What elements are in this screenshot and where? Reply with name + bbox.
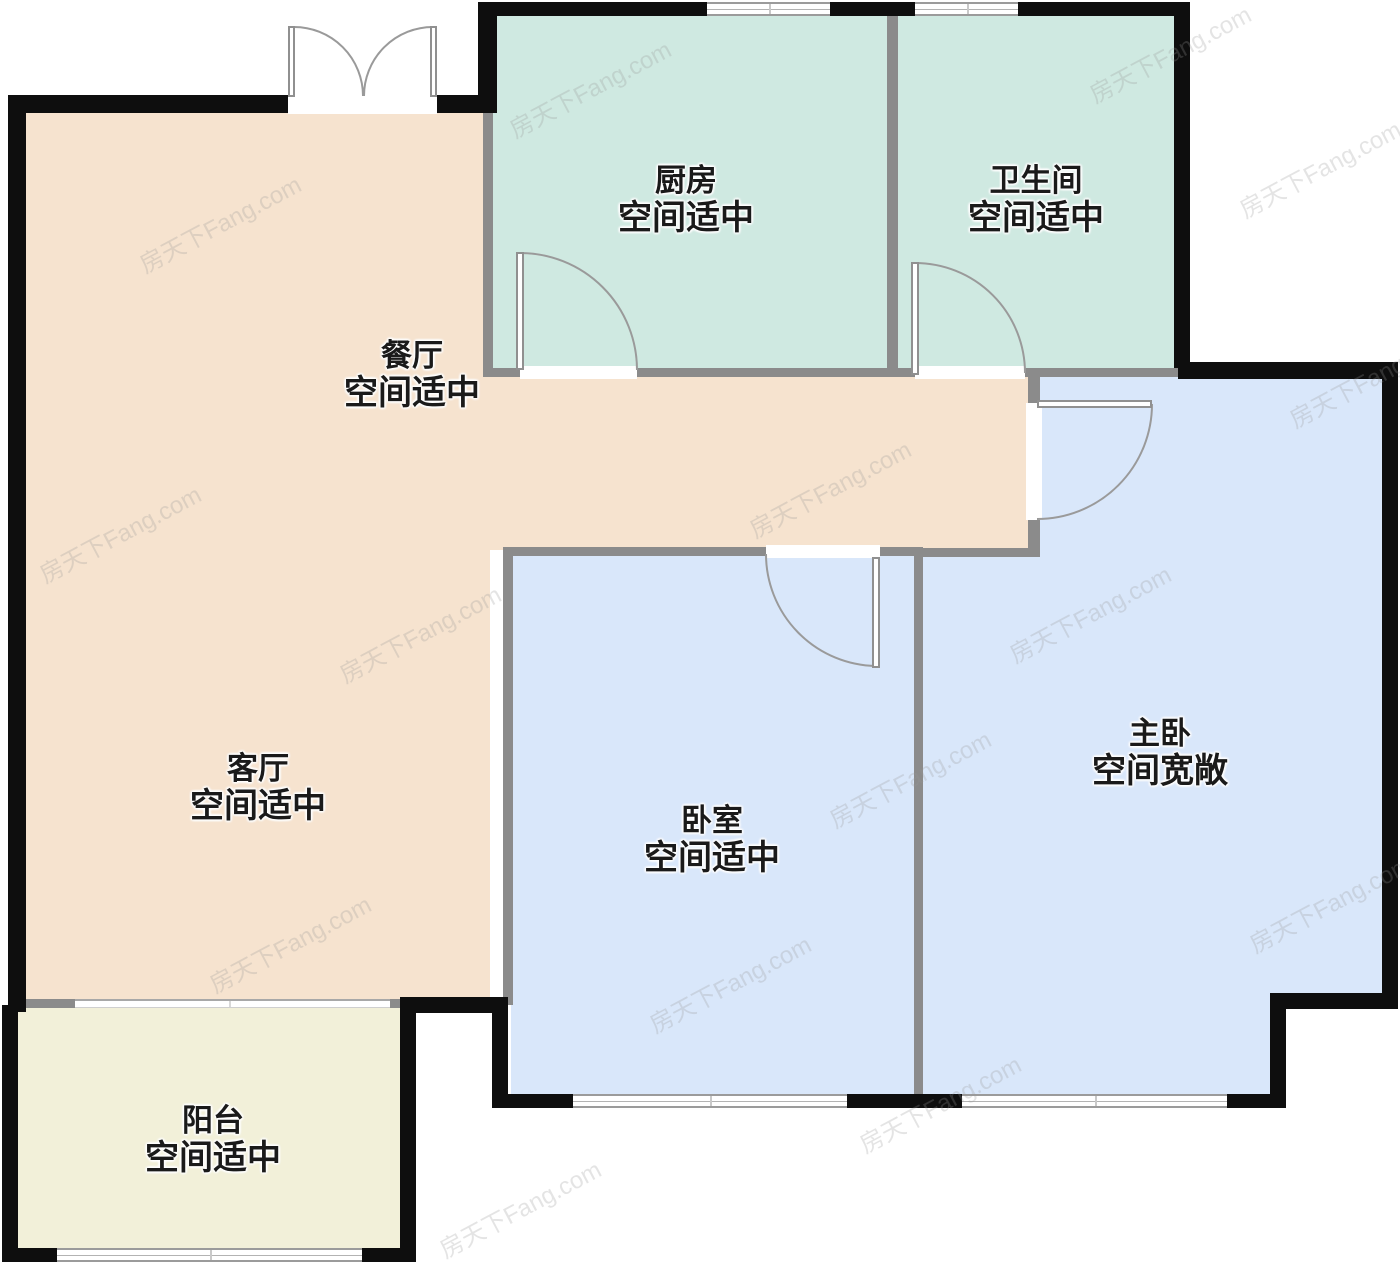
wall <box>478 2 707 16</box>
wall <box>1270 993 1398 1009</box>
wall <box>8 95 26 1012</box>
room-label-dining: 餐厅 空间适中 <box>344 337 480 413</box>
room-status: 空间适中 <box>190 787 326 826</box>
room-label-balcony: 阳台 空间适中 <box>145 1102 281 1178</box>
wall <box>914 548 923 1097</box>
wall <box>1178 362 1398 379</box>
bedroom-door-opening <box>766 545 880 558</box>
wall <box>1382 362 1398 1008</box>
corridor-area <box>483 375 1030 550</box>
wall <box>483 368 520 377</box>
wall <box>492 1000 508 1108</box>
entry-door-opening <box>288 94 437 114</box>
window-bedroom <box>573 1094 847 1108</box>
wall <box>503 547 766 556</box>
master-door-opening <box>1026 403 1042 520</box>
wall <box>1227 1094 1286 1108</box>
wall <box>503 547 513 1005</box>
room-name: 客厅 <box>190 750 326 787</box>
wall <box>920 548 1040 557</box>
room-label-master: 主卧 空间宽敞 <box>1092 715 1228 791</box>
wall <box>10 95 288 113</box>
wall <box>478 2 497 113</box>
room-status: 空间适中 <box>145 1139 281 1178</box>
window-balcony <box>57 1248 362 1262</box>
room-status: 空间宽敞 <box>1092 752 1228 791</box>
wall <box>400 997 416 1262</box>
room-status: 空间适中 <box>968 199 1104 238</box>
room-label-bedroom: 卧室 空间适中 <box>644 802 780 878</box>
bedroom-door-leaf <box>872 557 880 668</box>
master-door-leaf <box>1037 400 1152 408</box>
balcony-sliding-door <box>75 999 390 1008</box>
entry-door-right-arc <box>364 27 433 96</box>
kitchen-door-leaf <box>516 252 524 370</box>
master-area-main <box>921 555 1286 1097</box>
wall <box>887 12 898 377</box>
watermark: 房天下Fang.com <box>1232 110 1400 225</box>
room-label-bathroom: 卫生间 空间适中 <box>968 162 1104 238</box>
wall <box>362 1248 416 1262</box>
room-name: 餐厅 <box>344 337 480 374</box>
dining-living-area <box>24 110 490 1002</box>
window-bathroom <box>915 2 1018 16</box>
bathroom-door-opening <box>915 366 1025 379</box>
wall <box>1174 2 1190 368</box>
room-name: 卫生间 <box>968 162 1104 199</box>
room-status: 空间适中 <box>618 199 754 238</box>
bathroom-door-leaf <box>911 262 919 375</box>
wall <box>2 1005 18 1262</box>
wall <box>847 1094 962 1108</box>
wall <box>1018 2 1190 16</box>
window-kitchen <box>707 2 830 16</box>
watermark: 房天下Fang.com <box>432 1150 606 1264</box>
wall <box>1270 993 1286 1108</box>
room-name: 阳台 <box>145 1102 281 1139</box>
master-area-right <box>1286 555 1384 1000</box>
wall <box>637 368 915 377</box>
window-master-bedroom <box>962 1094 1227 1108</box>
room-status: 空间适中 <box>344 374 480 413</box>
floor-plan: 厨房 空间适中 卫生间 空间适中 餐厅 空间适中 客厅 空间适中 卧室 空间适中… <box>0 0 1400 1264</box>
room-name: 厨房 <box>618 162 754 199</box>
room-label-living: 客厅 空间适中 <box>190 750 326 826</box>
entry-door-left-leaf <box>288 26 295 97</box>
entry-door-left-arc <box>294 27 363 96</box>
room-name: 卧室 <box>644 802 780 839</box>
wall <box>830 2 915 16</box>
kitchen-door-opening <box>520 366 637 379</box>
room-label-kitchen: 厨房 空间适中 <box>618 162 754 238</box>
entry-door-right-leaf <box>430 26 437 97</box>
wall <box>483 107 493 377</box>
room-status: 空间适中 <box>644 839 780 878</box>
wall <box>1025 368 1180 377</box>
wall <box>400 997 508 1013</box>
room-name: 主卧 <box>1092 715 1228 752</box>
